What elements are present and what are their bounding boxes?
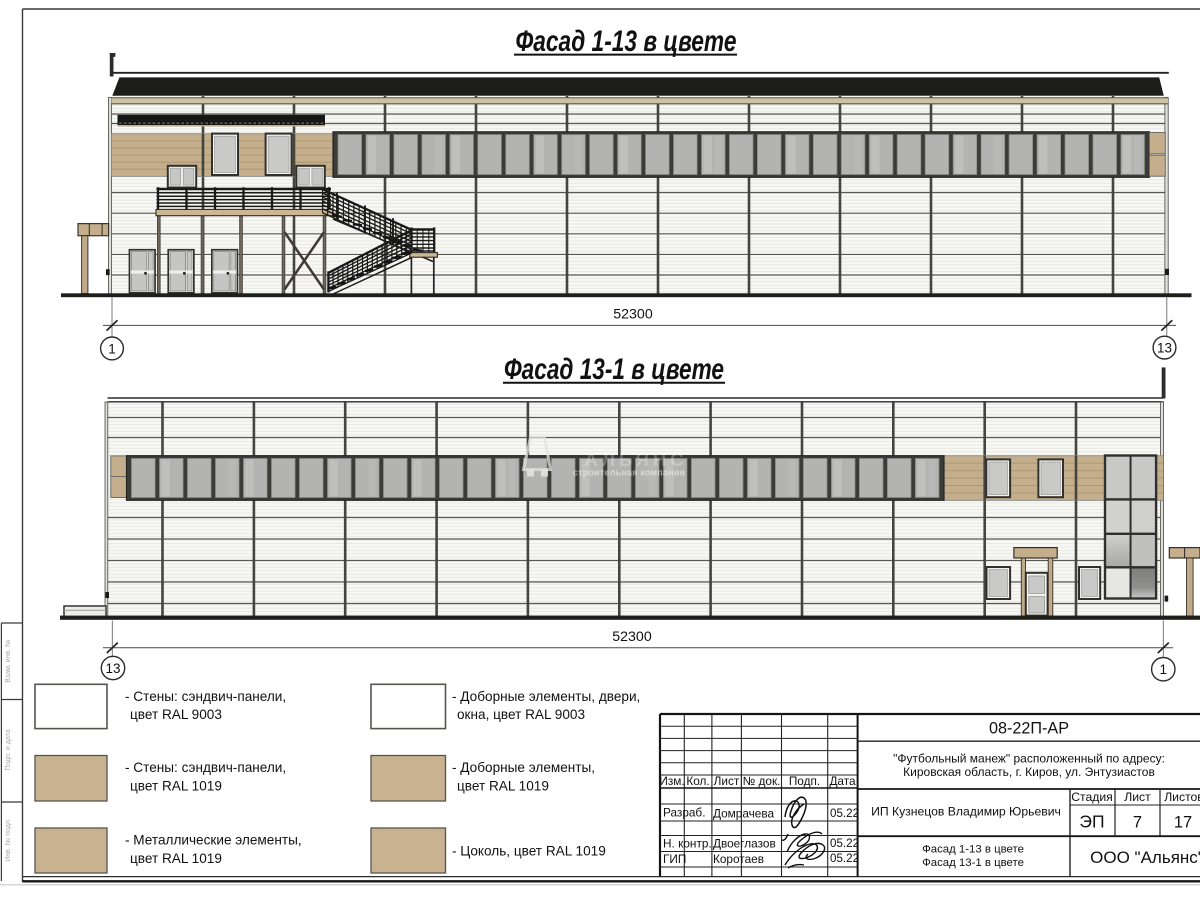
svg-text:05.22: 05.22: [830, 807, 859, 820]
svg-text:- Доборные элементы, двери,: - Доборные элементы, двери,: [452, 689, 640, 704]
svg-text:52300: 52300: [612, 629, 652, 645]
svg-text:- Стены: сэндвич-панели,: - Стены: сэндвич-панели,: [125, 760, 286, 775]
svg-text:- Стены: сэндвич-панели,: - Стены: сэндвич-панели,: [125, 689, 286, 704]
svg-text:Двоеглазов: Двоеглазов: [713, 836, 776, 850]
svg-text:Взам. инв. №: Взам. инв. №: [5, 639, 12, 682]
svg-text:Фасад 13-1 в цвете: Фасад 13-1 в цвете: [504, 353, 724, 386]
svg-text:Фасад 1-13 в цвете: Фасад 1-13 в цвете: [922, 844, 1024, 856]
svg-text:Листов: Листов: [1164, 790, 1200, 804]
svg-text:окна, цвет RAL 9003: окна, цвет RAL 9003: [457, 707, 585, 722]
svg-text:строительная компания: строительная компания: [573, 468, 685, 478]
svg-text:Разраб.: Разраб.: [663, 806, 705, 820]
svg-text:Изм.: Изм.: [659, 774, 684, 788]
svg-text:17: 17: [1174, 814, 1192, 832]
svg-text:08-22П-АР: 08-22П-АР: [989, 719, 1069, 737]
svg-text:13: 13: [105, 661, 120, 676]
svg-text:Подп. и дата: Подп. и дата: [5, 729, 12, 770]
svg-text:Н. контр.: Н. контр.: [663, 837, 712, 851]
svg-text:Фасад 13-1 в цвете: Фасад 13-1 в цвете: [922, 857, 1024, 869]
svg-text:Дата: Дата: [829, 774, 856, 788]
svg-text:Инв. № подл.: Инв. № подл.: [5, 818, 12, 862]
svg-text:№ док.: № док.: [743, 774, 781, 788]
svg-text:цвет RAL 1019: цвет RAL 1019: [130, 851, 222, 866]
svg-text:Стадия: Стадия: [1071, 790, 1113, 804]
svg-text:- Доборные элементы,: - Доборные элементы,: [452, 760, 595, 775]
svg-text:1: 1: [108, 341, 116, 356]
svg-text:цвет RAL 1019: цвет RAL 1019: [457, 778, 549, 793]
svg-text:Кол.: Кол.: [686, 774, 709, 788]
svg-text:13: 13: [1157, 341, 1172, 356]
svg-text:- Металлические элементы,: - Металлические элементы,: [125, 833, 302, 848]
svg-text:- Цоколь, цвет RAL 1019: - Цоколь, цвет RAL 1019: [452, 843, 606, 858]
svg-text:цвет RAL 1019: цвет RAL 1019: [130, 778, 222, 793]
svg-text:52300: 52300: [613, 307, 653, 323]
svg-text:Домрачева: Домрачева: [713, 806, 774, 820]
svg-text:ЭП: ЭП: [1079, 812, 1104, 832]
svg-text:05.22: 05.22: [830, 837, 859, 850]
svg-text:ГИП: ГИП: [663, 852, 686, 866]
svg-text:05.22: 05.22: [830, 852, 859, 865]
svg-text:"Футбольный манеж" расположенн: "Футбольный манеж" расположенный по адре…: [893, 752, 1165, 766]
svg-text:Подп.: Подп.: [789, 774, 820, 788]
svg-text:Лист: Лист: [1124, 790, 1151, 804]
svg-text:ИП Кузнецов Владимир Юрьевич: ИП Кузнецов Владимир Юрьевич: [871, 804, 1061, 818]
svg-text:цвет RAL 9003: цвет RAL 9003: [130, 707, 222, 722]
svg-text:Фасад 1-13 в цвете: Фасад 1-13 в цвете: [516, 25, 737, 58]
svg-text:7: 7: [1133, 814, 1142, 832]
svg-text:Кировская область, г. Киров, у: Кировская область, г. Киров, ул. Энтузиа…: [903, 765, 1155, 779]
svg-text:1: 1: [1160, 662, 1168, 677]
svg-text:ООО "Альянс": ООО "Альянс": [1090, 848, 1200, 867]
svg-text:Коротаев: Коротаев: [713, 852, 764, 866]
svg-text:Лист: Лист: [714, 774, 740, 788]
